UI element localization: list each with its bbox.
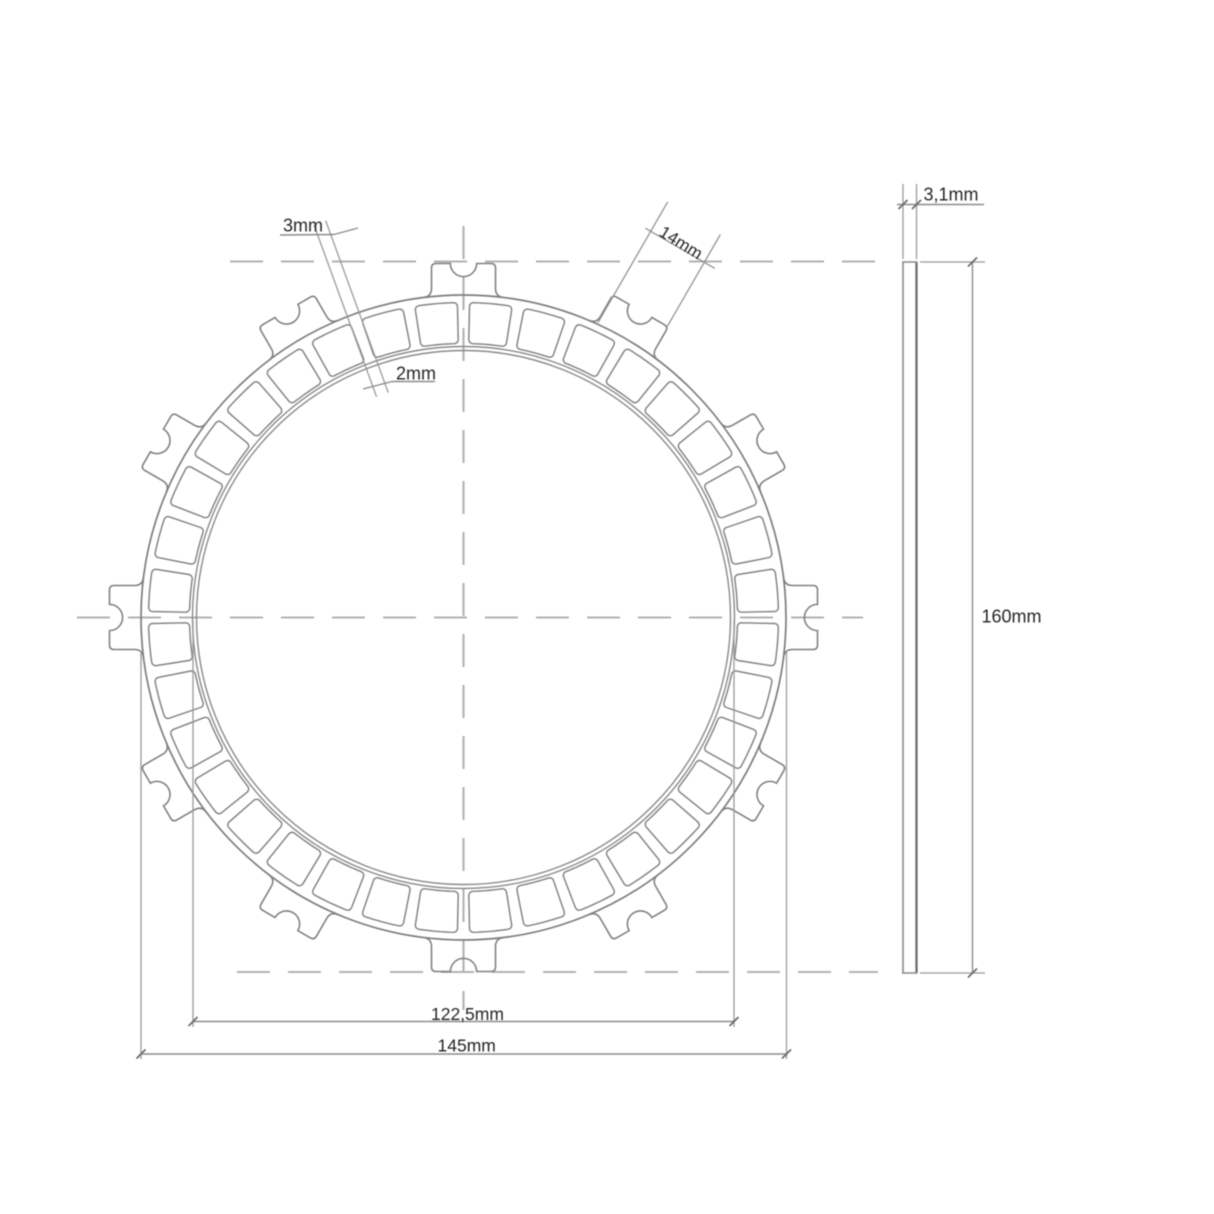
svg-text:3mm: 3mm: [283, 216, 323, 236]
svg-text:3,1mm: 3,1mm: [924, 185, 979, 205]
svg-text:160mm: 160mm: [982, 607, 1042, 627]
svg-text:2mm: 2mm: [396, 364, 436, 384]
svg-text:122,5mm: 122,5mm: [431, 1004, 504, 1024]
svg-text:145mm: 145mm: [438, 1036, 496, 1056]
